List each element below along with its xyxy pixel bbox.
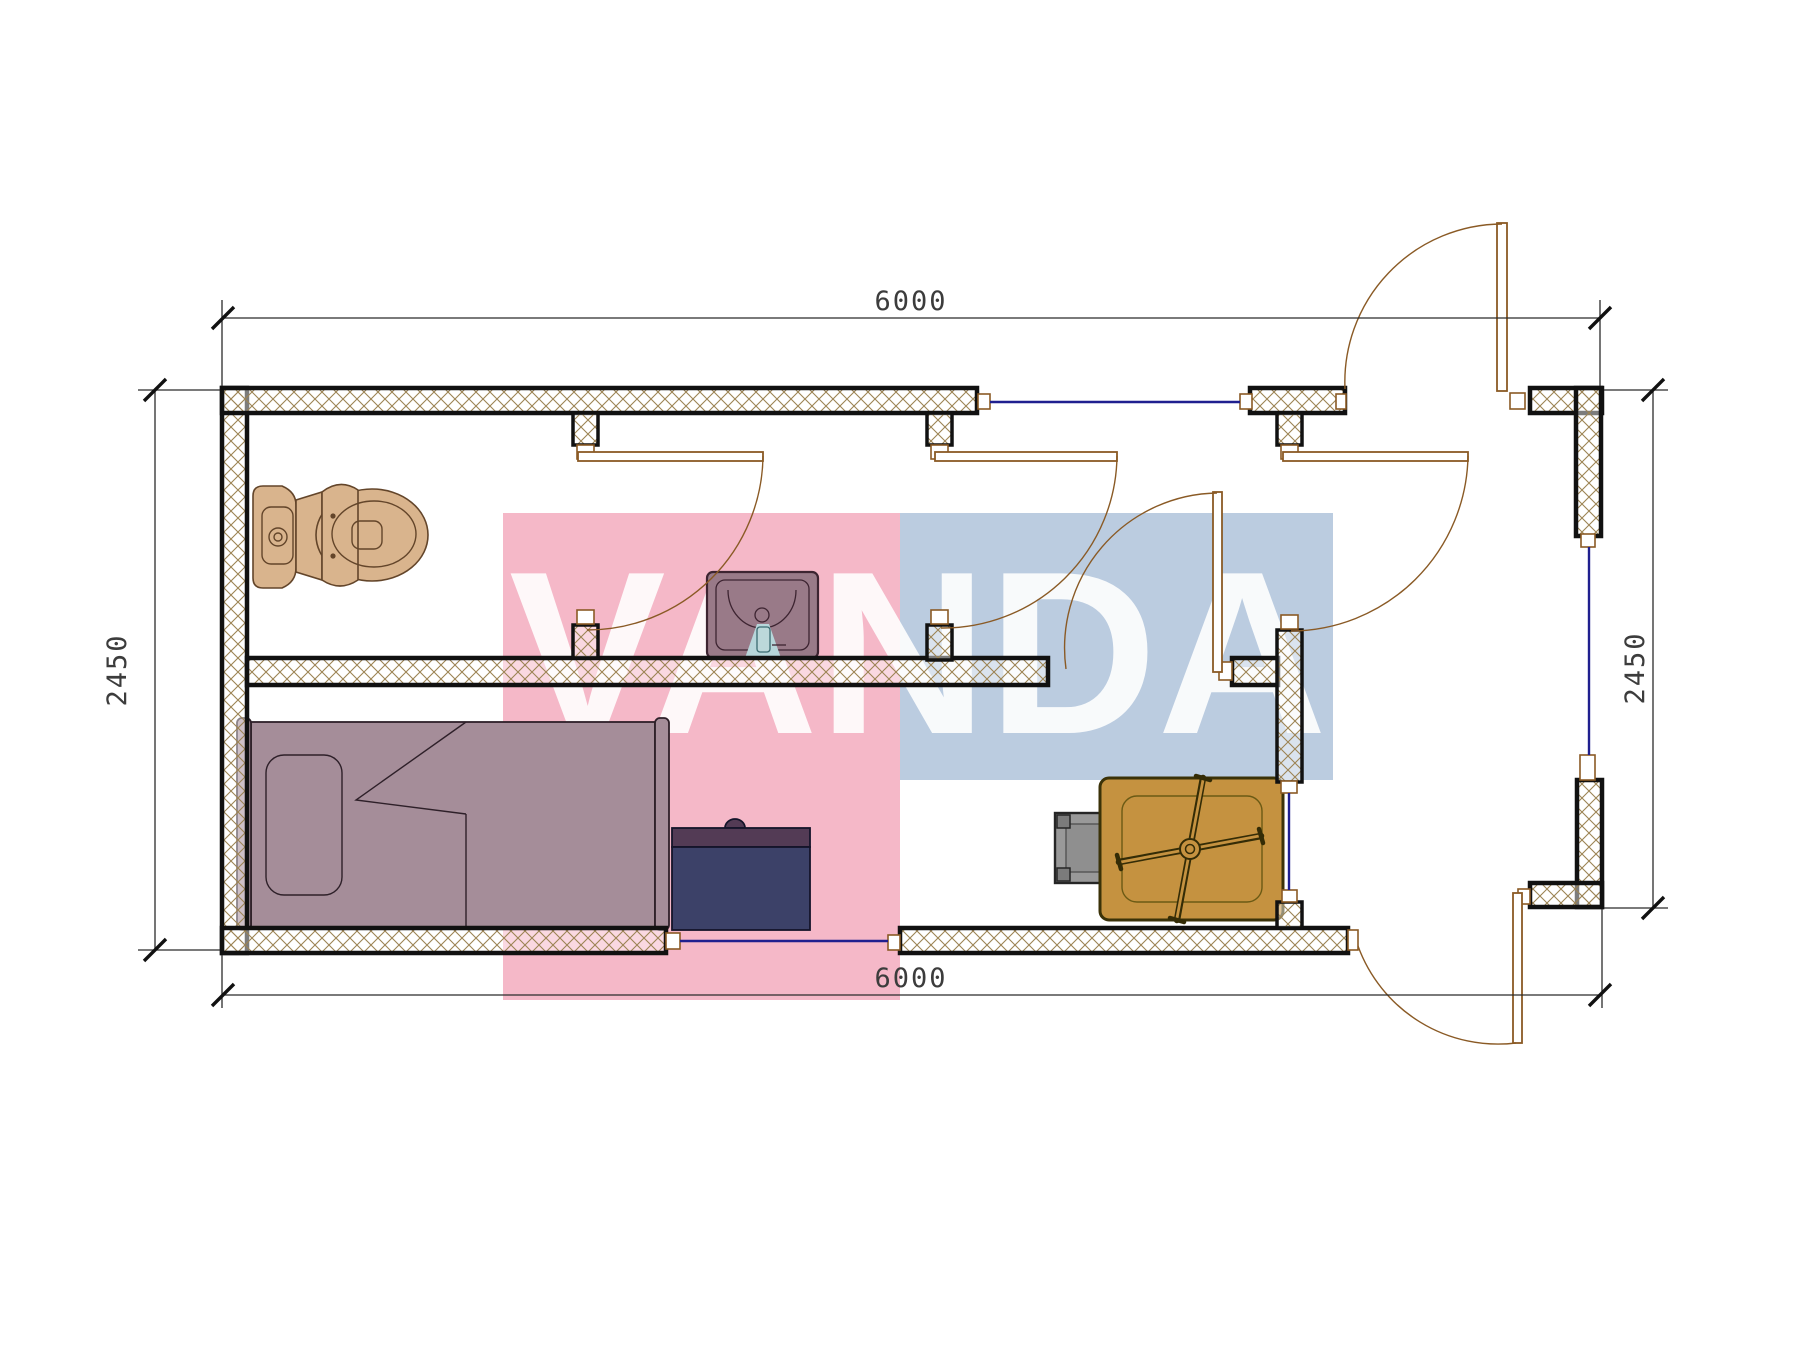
toilet — [253, 484, 428, 588]
bed — [237, 718, 669, 930]
partition2-bottom-stub — [927, 625, 952, 660]
dim-left: 2450 — [102, 633, 133, 706]
dim-right: 2450 — [1620, 631, 1651, 704]
door-entrance-bottom-leaf — [1513, 893, 1522, 1043]
door-vestibule-leaf — [1283, 452, 1468, 461]
partition3-mid — [1277, 630, 1302, 782]
sink-faucet — [757, 627, 770, 652]
door-entrance-top-arc — [1345, 224, 1502, 389]
wash-basin — [707, 572, 818, 658]
table-with-fan — [1100, 776, 1283, 922]
wall-bottom-b — [900, 928, 1348, 953]
door-toilet-leaf — [578, 452, 763, 461]
wall-left — [222, 388, 247, 953]
partition3-bottom-stub — [1277, 902, 1302, 928]
wall-corner-tr-v — [1576, 388, 1601, 536]
wall-top-a — [222, 388, 977, 413]
dim-bottom: 6000 — [874, 963, 947, 994]
dim-top: 6000 — [874, 286, 947, 317]
wall-middle-east — [1232, 658, 1278, 685]
partition2-top-stub — [927, 413, 952, 445]
wall-top-b — [1250, 388, 1345, 413]
partition1-top-stub — [573, 413, 598, 445]
door-washroom-leaf — [935, 452, 1117, 461]
door-bedroom-leaf — [1213, 492, 1222, 672]
door-entrance-top-leaf — [1497, 223, 1507, 391]
wall-corner-br-h — [1530, 883, 1602, 907]
wall-middle — [247, 658, 1048, 685]
wall-bottom-a — [222, 928, 666, 953]
partition3-top-stub — [1277, 413, 1302, 445]
floor-plan-drawing: VANDA — [0, 0, 1800, 1350]
floor-plan-canvas: VANDA — [0, 0, 1800, 1350]
desk — [672, 819, 810, 930]
